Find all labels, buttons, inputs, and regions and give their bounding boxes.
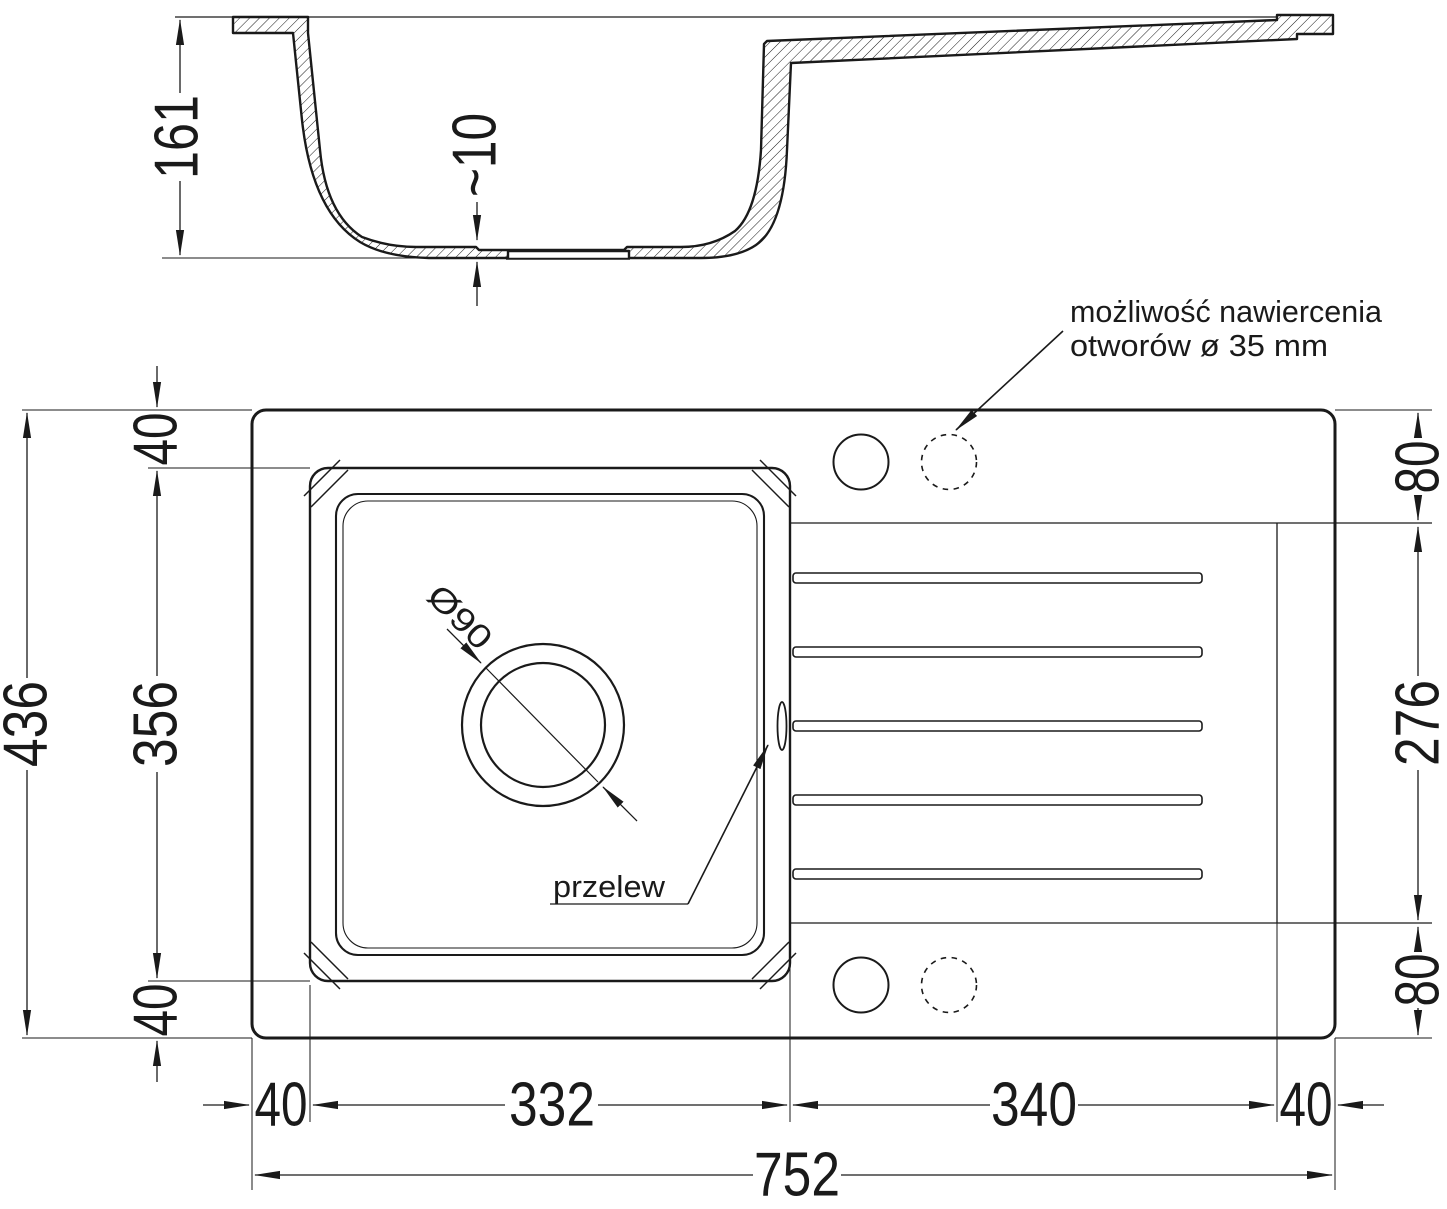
dim-left-bottom-margin: 40 (121, 984, 190, 1037)
dimension-right-chain: 80 276 80 (1383, 413, 1447, 1035)
dim-depth-label: 161 (142, 95, 211, 179)
drainer-groove (793, 795, 1202, 805)
plan-view: Ø90 przelew możliwość nawiercenia (252, 294, 1432, 1038)
tap-hole-bottom (834, 958, 889, 1013)
sink-section-profile (233, 15, 1333, 258)
dim-right-top-strip: 80 (1383, 441, 1447, 494)
drainer-groove (793, 721, 1202, 731)
drill-note-line2: otworów ø 35 mm (1070, 328, 1328, 363)
drawing-canvas: 161 ~10 (0, 0, 1447, 1209)
dim-drainer-height: 276 (1383, 680, 1447, 766)
dimension-total-height: 436 (0, 413, 60, 1035)
dim-drainer-width: 340 (991, 1070, 1077, 1139)
drainer-groove (793, 573, 1202, 583)
dim-total-height-label: 436 (0, 681, 60, 767)
cross-section-view: 161 ~10 (142, 15, 1333, 306)
bowl (304, 460, 796, 989)
drainer-groove (793, 869, 1202, 879)
dimension-left-chain: 40 356 40 (121, 366, 190, 1082)
drainer-grooves (793, 573, 1202, 879)
drainer-groove (793, 647, 1202, 657)
dimension-bottom-chain: 40 332 340 40 (203, 1070, 1384, 1139)
optional-tap-hole-top (922, 435, 977, 490)
dimension-total-width: 752 (255, 1140, 1332, 1209)
dim-bottom-right-margin: 40 (1280, 1070, 1333, 1139)
optional-tap-hole-bottom (922, 958, 977, 1013)
dim-bowl-height: 356 (121, 681, 190, 767)
dim-bottom-left-margin: 40 (255, 1070, 308, 1139)
sink-technical-drawing: 161 ~10 (0, 0, 1447, 1209)
dim-left-top-margin: 40 (121, 413, 190, 466)
tap-hole-top (834, 435, 889, 490)
dimension-depth: 161 (142, 20, 211, 255)
drill-note-leader (956, 331, 1063, 430)
dim-bottom-thickness-label: ~10 (440, 113, 509, 197)
drill-note-line1: możliwość nawiercenia (1070, 294, 1383, 329)
overflow-label: przelew (553, 869, 666, 904)
overflow-slot (778, 702, 787, 750)
dim-bowl-width: 332 (509, 1070, 595, 1139)
dim-right-bottom-strip: 80 (1383, 954, 1447, 1007)
dimension-bottom-thickness: ~10 (440, 113, 509, 306)
dim-total-width-label: 752 (754, 1140, 840, 1209)
